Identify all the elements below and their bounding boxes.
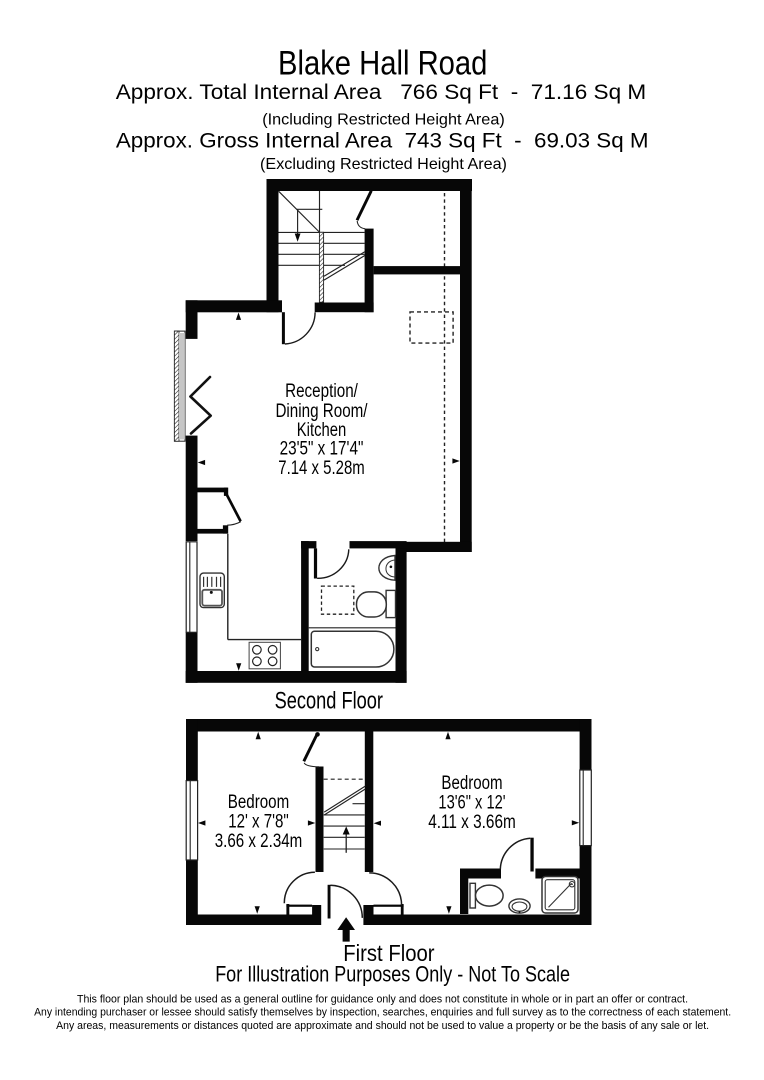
svg-text:7.14 x 5.28m: 7.14 x 5.28m <box>278 457 365 479</box>
svg-text:Approx. Total Internal Area: Approx. Total Internal Area 766 Sq Ft - … <box>116 80 647 104</box>
svg-text:(Including Restricted Height A: (Including Restricted Height Area) <box>262 111 505 128</box>
svg-text:Blake Hall Road: Blake Hall Road <box>278 44 487 82</box>
svg-text:Approx. Gross Internal Area 7: Approx. Gross Internal Area 743 Sq Ft - … <box>116 128 649 152</box>
svg-text:Any intending purchaser or les: Any intending purchaser or lessee should… <box>34 1007 731 1019</box>
svg-text:(Excluding Restricted Height A: (Excluding Restricted Height Area) <box>260 156 507 173</box>
svg-text:For Illustration Purposes Only: For Illustration Purposes Only - Not To … <box>215 961 570 986</box>
svg-text:Any areas, measurements or dis: Any areas, measurements or distances quo… <box>56 1020 709 1032</box>
svg-text:3.66 x 2.34m: 3.66 x 2.34m <box>215 830 303 852</box>
svg-text:12' x 7'8": 12' x 7'8" <box>228 810 289 832</box>
svg-text:Reception/: Reception/ <box>285 380 358 402</box>
svg-text:This floor plan should be used: This floor plan should be used as a gene… <box>77 993 688 1005</box>
svg-text:4.11 x 3.66m: 4.11 x 3.66m <box>428 811 516 833</box>
svg-text:Second Floor: Second Floor <box>275 687 383 714</box>
